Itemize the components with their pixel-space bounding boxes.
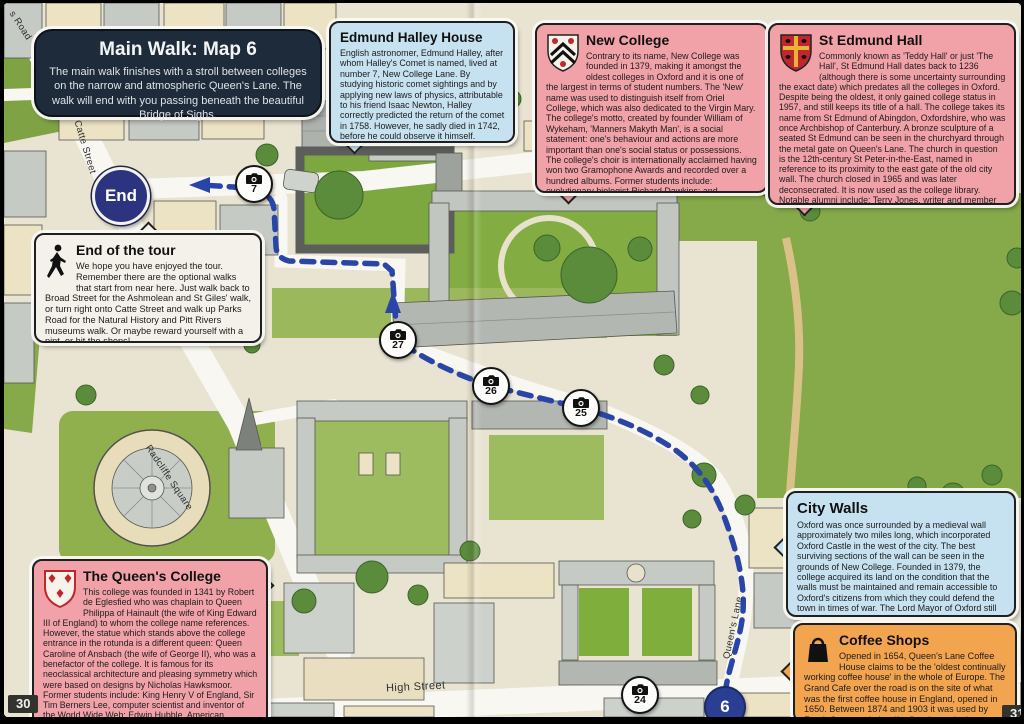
- page-intro-text: The main walk finishes with a stroll bet…: [48, 65, 308, 122]
- callout-coffee-shops: Coffee Shops Opened in 1654, Queen's Lan…: [793, 623, 1017, 717]
- queens-college-crest-icon: [43, 569, 77, 609]
- callout-body: Commonly known as 'Teddy Hall' or just '…: [779, 51, 1006, 205]
- callout-body: We hope you have enjoyed the tour. Remem…: [45, 261, 252, 343]
- scanned-guidebook-spread: { "page": { "left_number": "30", "right_…: [0, 0, 1024, 724]
- photo-spot-marker-25: 25: [562, 389, 600, 427]
- continuation-number: 6: [720, 697, 729, 717]
- callout-body: Opened in 1654, Queen's Lane Coffee Hous…: [804, 651, 1007, 717]
- callout-new-college: New College Contrary to its name, New Co…: [535, 23, 768, 193]
- photo-spot-number: 24: [634, 695, 646, 706]
- photo-spot-marker-24: 24: [621, 676, 659, 714]
- photo-spot-number: 26: [485, 386, 497, 397]
- callout-title: End of the tour: [45, 242, 252, 258]
- callout-end-of-tour: End of the tour We hope you have enjoyed…: [34, 233, 262, 343]
- callout-title: St Edmund Hall: [779, 32, 1006, 48]
- end-marker-label: End: [105, 186, 137, 206]
- callout-city-walls: City Walls Oxford was once surrounded by…: [786, 491, 1016, 617]
- callout-edmund-halley-house: Edmund Halley House English astronomer, …: [329, 21, 515, 143]
- book-page-spread: s Road Catte Street Radcliffe Square Que…: [4, 3, 1021, 717]
- end-marker: End: [92, 167, 150, 225]
- callout-title: City Walls: [797, 500, 1006, 517]
- st-edmund-hall-crest-icon: [779, 33, 813, 73]
- callout-body: English astronomer, Edmund Halley, after…: [340, 48, 505, 142]
- photo-spot-marker-26: 26: [472, 367, 510, 405]
- photo-spot-marker-27: 27: [379, 321, 417, 359]
- callout-title: Coffee Shops: [804, 632, 1007, 648]
- photo-spot-number: 7: [251, 184, 257, 195]
- photo-spot-marker-7: 7: [235, 165, 273, 203]
- photo-spot-number: 25: [575, 408, 587, 419]
- page-number-right: 31: [1002, 705, 1021, 717]
- page-number-left: 30: [8, 695, 38, 713]
- callout-body: Oxford was once surrounded by a medieval…: [797, 520, 1006, 617]
- callout-st-edmund-hall: St Edmund Hall Commonly known as 'Teddy …: [768, 23, 1016, 205]
- new-college-crest-icon: [546, 33, 580, 73]
- map-header-box: Main Walk: Map 6 The main walk finishes …: [34, 29, 322, 117]
- page-title: Main Walk: Map 6: [48, 39, 308, 61]
- photo-spot-number: 27: [392, 340, 404, 351]
- coffee-bag-icon: [804, 633, 832, 665]
- walking-person-icon: [45, 243, 69, 281]
- callout-queens-college: The Queen's College This college was fou…: [32, 559, 268, 717]
- callout-title: Edmund Halley House: [340, 30, 505, 45]
